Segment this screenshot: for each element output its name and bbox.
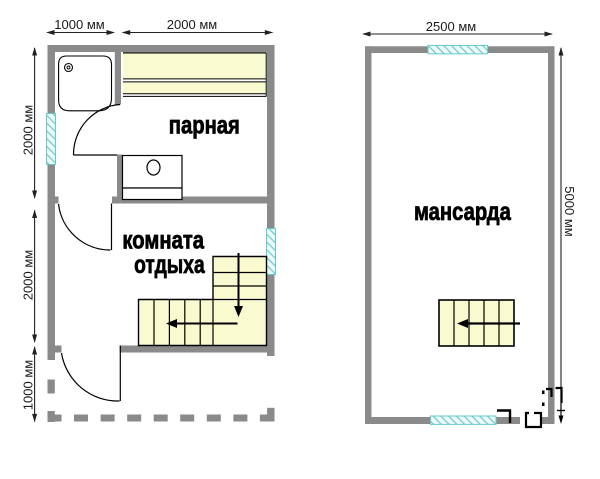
svg-text:1000 мм: 1000 мм [54,17,104,32]
svg-text:5000 мм: 5000 мм [562,186,577,236]
svg-text:2000 мм: 2000 мм [21,105,36,155]
svg-text:отдыха: отдыха [134,251,205,279]
svg-text:парная: парная [169,110,240,139]
svg-text:1000 мм: 1000 мм [21,360,36,410]
svg-text:2000 мм: 2000 мм [21,250,36,300]
svg-text:2000 мм: 2000 мм [167,17,217,32]
svg-text:мансарда: мансарда [414,197,511,226]
svg-text:2500 мм: 2500 мм [426,19,476,34]
